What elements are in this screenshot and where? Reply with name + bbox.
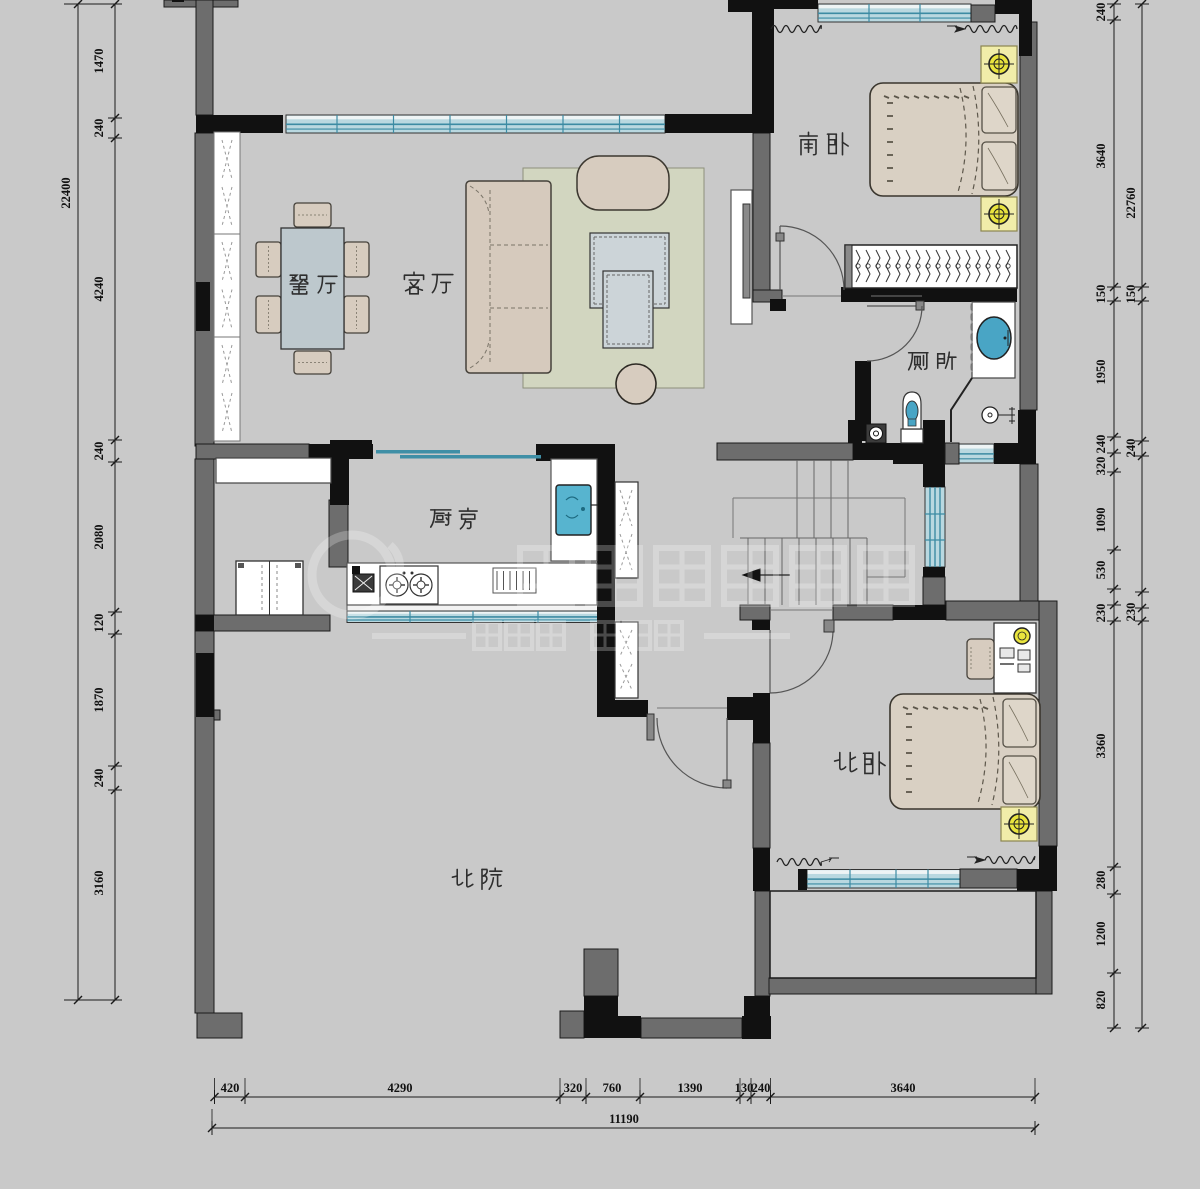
svg-text:1470: 1470 bbox=[92, 49, 106, 74]
svg-text:760: 760 bbox=[603, 1081, 622, 1095]
svg-text:240: 240 bbox=[752, 1081, 771, 1095]
svg-text:3360: 3360 bbox=[1094, 734, 1108, 759]
svg-text:1950: 1950 bbox=[1094, 360, 1108, 385]
svg-text:240: 240 bbox=[1094, 3, 1108, 22]
svg-text:3640: 3640 bbox=[1094, 144, 1108, 169]
svg-text:320: 320 bbox=[1094, 457, 1108, 476]
svg-text:4240: 4240 bbox=[92, 277, 106, 302]
svg-text:130: 130 bbox=[735, 1081, 754, 1095]
svg-text:240: 240 bbox=[92, 119, 106, 138]
svg-text:240: 240 bbox=[1094, 435, 1108, 454]
svg-text:320: 320 bbox=[564, 1081, 583, 1095]
svg-text:22760: 22760 bbox=[1124, 187, 1138, 218]
svg-text:530: 530 bbox=[1094, 561, 1108, 580]
svg-text:11190: 11190 bbox=[609, 1112, 639, 1126]
svg-text:3640: 3640 bbox=[891, 1081, 916, 1095]
svg-text:150: 150 bbox=[1094, 285, 1108, 304]
svg-text:240: 240 bbox=[92, 769, 106, 788]
svg-text:230: 230 bbox=[1124, 603, 1138, 622]
svg-text:240: 240 bbox=[1124, 439, 1138, 458]
svg-text:420: 420 bbox=[221, 1081, 240, 1095]
svg-text:150: 150 bbox=[1124, 285, 1138, 304]
svg-text:2080: 2080 bbox=[92, 525, 106, 550]
svg-text:22400: 22400 bbox=[59, 177, 73, 208]
svg-text:230: 230 bbox=[1094, 604, 1108, 623]
svg-text:1090: 1090 bbox=[1094, 508, 1108, 533]
svg-text:820: 820 bbox=[1094, 991, 1108, 1010]
svg-text:120: 120 bbox=[92, 614, 106, 633]
svg-text:240: 240 bbox=[92, 442, 106, 461]
svg-text:1870: 1870 bbox=[92, 688, 106, 713]
svg-text:3160: 3160 bbox=[92, 871, 106, 896]
svg-text:1390: 1390 bbox=[678, 1081, 703, 1095]
svg-text:4290: 4290 bbox=[388, 1081, 413, 1095]
svg-text:280: 280 bbox=[1094, 871, 1108, 890]
svg-text:1200: 1200 bbox=[1094, 922, 1108, 947]
